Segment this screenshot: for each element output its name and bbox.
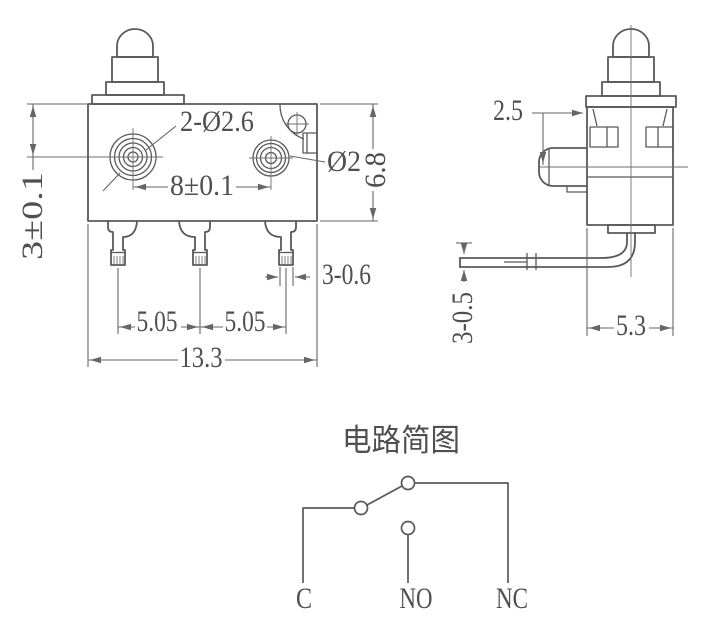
dim-pitch-left: 5.05 xyxy=(137,305,178,338)
switch-body-side xyxy=(587,107,673,233)
mounting-hole-right xyxy=(249,136,293,190)
dim-body-depth: 5.3 xyxy=(616,309,646,342)
switch-technical-drawing: 3±0.1 2-Ø2.6 8±0.1 Ø2 6.8 xyxy=(0,0,720,622)
circuit-wiring xyxy=(303,477,508,584)
dim-top-offset: 2.5 xyxy=(493,94,523,127)
dim-top-to-center: 3±0.1 xyxy=(16,172,49,260)
dim-body-height: 6.8 xyxy=(359,152,392,188)
switch-lever xyxy=(367,486,402,505)
dim-hole-spacing: 8±0.1 xyxy=(170,169,234,202)
side-dimensions: 2.5 3-0.5 5.3 xyxy=(446,94,673,344)
label-common: C xyxy=(296,582,312,615)
side-actuator-bump xyxy=(539,148,587,192)
dim-body-width: 13.3 xyxy=(180,341,223,374)
side-centerlines xyxy=(538,25,688,277)
technical-drawing-page: 3±0.1 2-Ø2.6 8±0.1 Ø2 6.8 xyxy=(0,0,720,622)
dim-terminal-width: 3-0.6 xyxy=(322,258,371,291)
contact-nc xyxy=(402,477,415,490)
side-view: 2.5 3-0.5 5.3 xyxy=(446,25,688,344)
front-view: 3±0.1 2-Ø2.6 8±0.1 Ø2 6.8 xyxy=(16,29,392,374)
label-normally-open: NO xyxy=(400,582,433,615)
dim-pin-dia: Ø2 xyxy=(327,145,361,178)
terminal-right xyxy=(265,221,296,265)
front-dimensions: 3±0.1 2-Ø2.6 8±0.1 Ø2 6.8 xyxy=(16,104,392,374)
plunger-front xyxy=(92,29,184,104)
corner-pin-detail xyxy=(280,104,317,153)
label-normally-closed: NC xyxy=(496,582,528,615)
terminal-left xyxy=(108,221,137,265)
dim-terminal-thickness: 3-0.5 xyxy=(446,292,479,344)
bent-terminal-wire xyxy=(460,233,635,270)
terminal-middle xyxy=(179,221,210,265)
circuit-title: 电路简图 xyxy=(342,423,460,458)
contact-no xyxy=(402,522,415,535)
dim-hole-callout: 2-Ø2.6 xyxy=(180,105,254,138)
circuit-diagram: 电路简图 C NO NC xyxy=(296,423,528,615)
dim-pitch-right: 5.05 xyxy=(225,305,266,338)
contact-common xyxy=(355,502,368,515)
